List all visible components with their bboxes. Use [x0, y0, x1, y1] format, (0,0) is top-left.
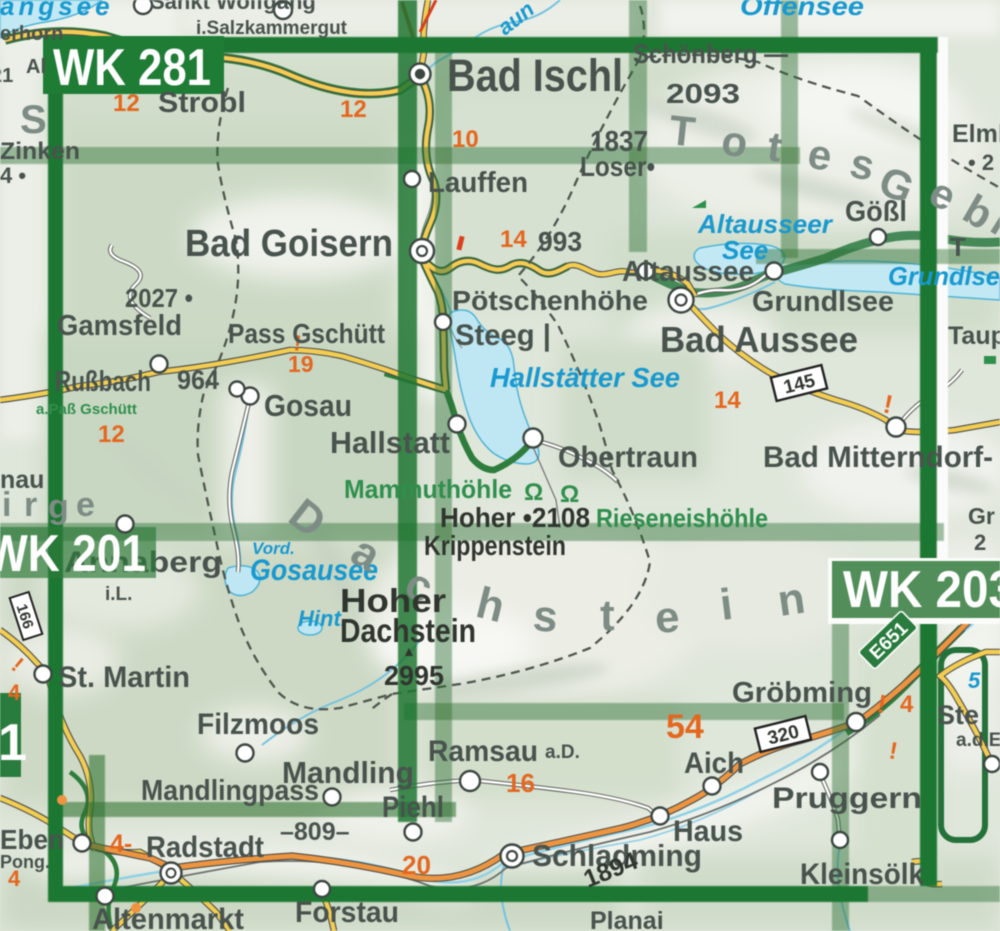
svg-text:4-: 4-	[110, 830, 132, 858]
svg-text:Offensee: Offensee	[740, 0, 864, 21]
svg-text:Grundlse: Grundlse	[888, 261, 1000, 291]
svg-text:Mammuthöhle: Mammuthöhle	[344, 474, 512, 504]
svg-text:Sankt Wolfgang: Sankt Wolfgang	[150, 0, 316, 14]
svg-text:St. Martin: St. Martin	[58, 661, 190, 694]
svg-text:WK 203: WK 203	[843, 561, 1000, 619]
svg-text:Kleinsölk: Kleinsölk	[800, 858, 924, 891]
svg-text:Ste: Ste	[937, 700, 979, 730]
svg-text:a.d.E: a.d.E	[956, 730, 1000, 751]
svg-text:Pruggern: Pruggern	[772, 782, 922, 815]
svg-text:Bad Goisern: Bad Goisern	[185, 223, 393, 265]
svg-text:Steeg |: Steeg |	[455, 319, 551, 352]
svg-text:Gr: Gr	[968, 503, 995, 529]
svg-text:g: g	[48, 488, 69, 526]
svg-text:T: T	[950, 232, 966, 262]
svg-text:Taup: Taup	[948, 322, 1000, 350]
svg-text:4: 4	[8, 866, 21, 891]
svg-text:Bad Ischl: Bad Ischl	[447, 50, 623, 101]
svg-text:Altaussee: Altaussee	[622, 256, 754, 288]
svg-text:10: 10	[452, 126, 479, 153]
svg-text:Zinken: Zinken	[0, 138, 80, 165]
svg-text:Bad Mitterndorf-: Bad Mitterndorf-	[763, 441, 993, 474]
svg-text:19: 19	[288, 351, 314, 377]
svg-text:i: i	[2, 486, 11, 524]
svg-text:2995: 2995	[384, 660, 444, 691]
svg-text:21: 21	[0, 65, 13, 87]
svg-text:964: 964	[177, 365, 219, 395]
svg-text:16: 16	[506, 768, 535, 798]
svg-text:14: 14	[500, 226, 527, 253]
svg-text:Gößl: Gößl	[845, 196, 907, 228]
svg-text:Dachstein: Dachstein	[340, 612, 476, 649]
svg-text:Radstadt: Radstadt	[146, 831, 264, 864]
svg-text:Planai: Planai	[590, 907, 664, 931]
svg-text:e: e	[76, 486, 95, 524]
svg-text:Rieseneishöhle: Rieseneishöhle	[596, 503, 768, 533]
svg-text:Hallstätter See: Hallstätter See	[490, 362, 680, 393]
svg-text:t: t	[600, 591, 615, 640]
svg-text:Al: Al	[26, 56, 46, 78]
svg-text:Grundlsee: Grundlsee	[752, 286, 894, 318]
svg-text:12: 12	[340, 96, 367, 123]
svg-text:Gröbming: Gröbming	[732, 677, 872, 709]
svg-text:12: 12	[98, 421, 125, 448]
svg-text:–809–: –809–	[280, 818, 350, 846]
svg-text:a.Paß Gschütt: a.Paß Gschütt	[36, 401, 137, 418]
svg-text:993: 993	[538, 226, 582, 257]
svg-text:Filzmoos: Filzmoos	[197, 708, 319, 741]
svg-text:Altenmarkt: Altenmarkt	[92, 903, 244, 931]
svg-text:Aich: Aich	[684, 747, 744, 780]
svg-text:2093: 2093	[666, 78, 740, 109]
svg-text:Eben: Eben	[0, 824, 64, 855]
svg-text:Piehl: Piehl	[382, 791, 444, 824]
svg-text:2: 2	[974, 530, 986, 555]
svg-text:erhorn: erhorn	[0, 23, 63, 45]
svg-text:r: r	[24, 486, 37, 524]
svg-text:Bad Aussee: Bad Aussee	[660, 319, 858, 360]
svg-text:5: 5	[968, 668, 981, 693]
svg-text:Pass Gschütt: Pass Gschütt	[228, 318, 385, 349]
svg-text:12: 12	[113, 90, 140, 117]
svg-text:Mandlingpass: Mandlingpass	[141, 775, 319, 807]
svg-text:Obertraun: Obertraun	[558, 441, 698, 474]
svg-text:a.D.: a.D.	[545, 742, 580, 763]
svg-text:Pötschenhöhe: Pötschenhöhe	[452, 285, 648, 316]
svg-text:Strobl: Strobl	[158, 87, 246, 119]
svg-text:54: 54	[666, 708, 704, 746]
svg-text:Schönberg —: Schönberg —	[633, 39, 788, 69]
svg-text:Ramsau: Ramsau	[428, 735, 538, 768]
svg-text:2027 •: 2027 •	[125, 283, 193, 313]
svg-text:i.L.: i.L.	[105, 584, 132, 605]
svg-text:Forstau: Forstau	[295, 896, 399, 929]
svg-text:T: T	[667, 106, 698, 155]
svg-text:s: s	[531, 591, 560, 642]
svg-text:Hallstatt: Hallstatt	[330, 425, 450, 460]
svg-text:Krippenstein: Krippenstein	[424, 530, 566, 561]
svg-text:14: 14	[714, 387, 741, 414]
svg-text:angsee: angsee	[0, 0, 114, 21]
svg-text:WK 201: WK 201	[0, 525, 146, 583]
svg-text:20: 20	[402, 850, 431, 880]
svg-text:1: 1	[0, 714, 27, 772]
svg-text:Gosau: Gosau	[264, 388, 352, 423]
svg-text:• 2: • 2	[968, 150, 994, 175]
svg-text:Lauffen: Lauffen	[428, 167, 528, 199]
svg-text:Gamsfeld: Gamsfeld	[57, 310, 182, 342]
svg-text:Elmb: Elmb	[952, 120, 1000, 148]
svg-text:i.Salzkammergut: i.Salzkammergut	[196, 18, 348, 39]
svg-text:4 •: 4 •	[0, 163, 26, 188]
svg-text:Haus: Haus	[673, 815, 743, 848]
svg-text:4: 4	[900, 691, 914, 718]
svg-text:Loser•: Loser•	[580, 151, 655, 182]
svg-text:S: S	[20, 98, 47, 142]
svg-text:Hoher •2108: Hoher •2108	[440, 502, 590, 533]
svg-text:e: e	[653, 592, 681, 643]
svg-text:4: 4	[8, 680, 21, 705]
svg-text:Rußbach: Rußbach	[55, 366, 151, 398]
